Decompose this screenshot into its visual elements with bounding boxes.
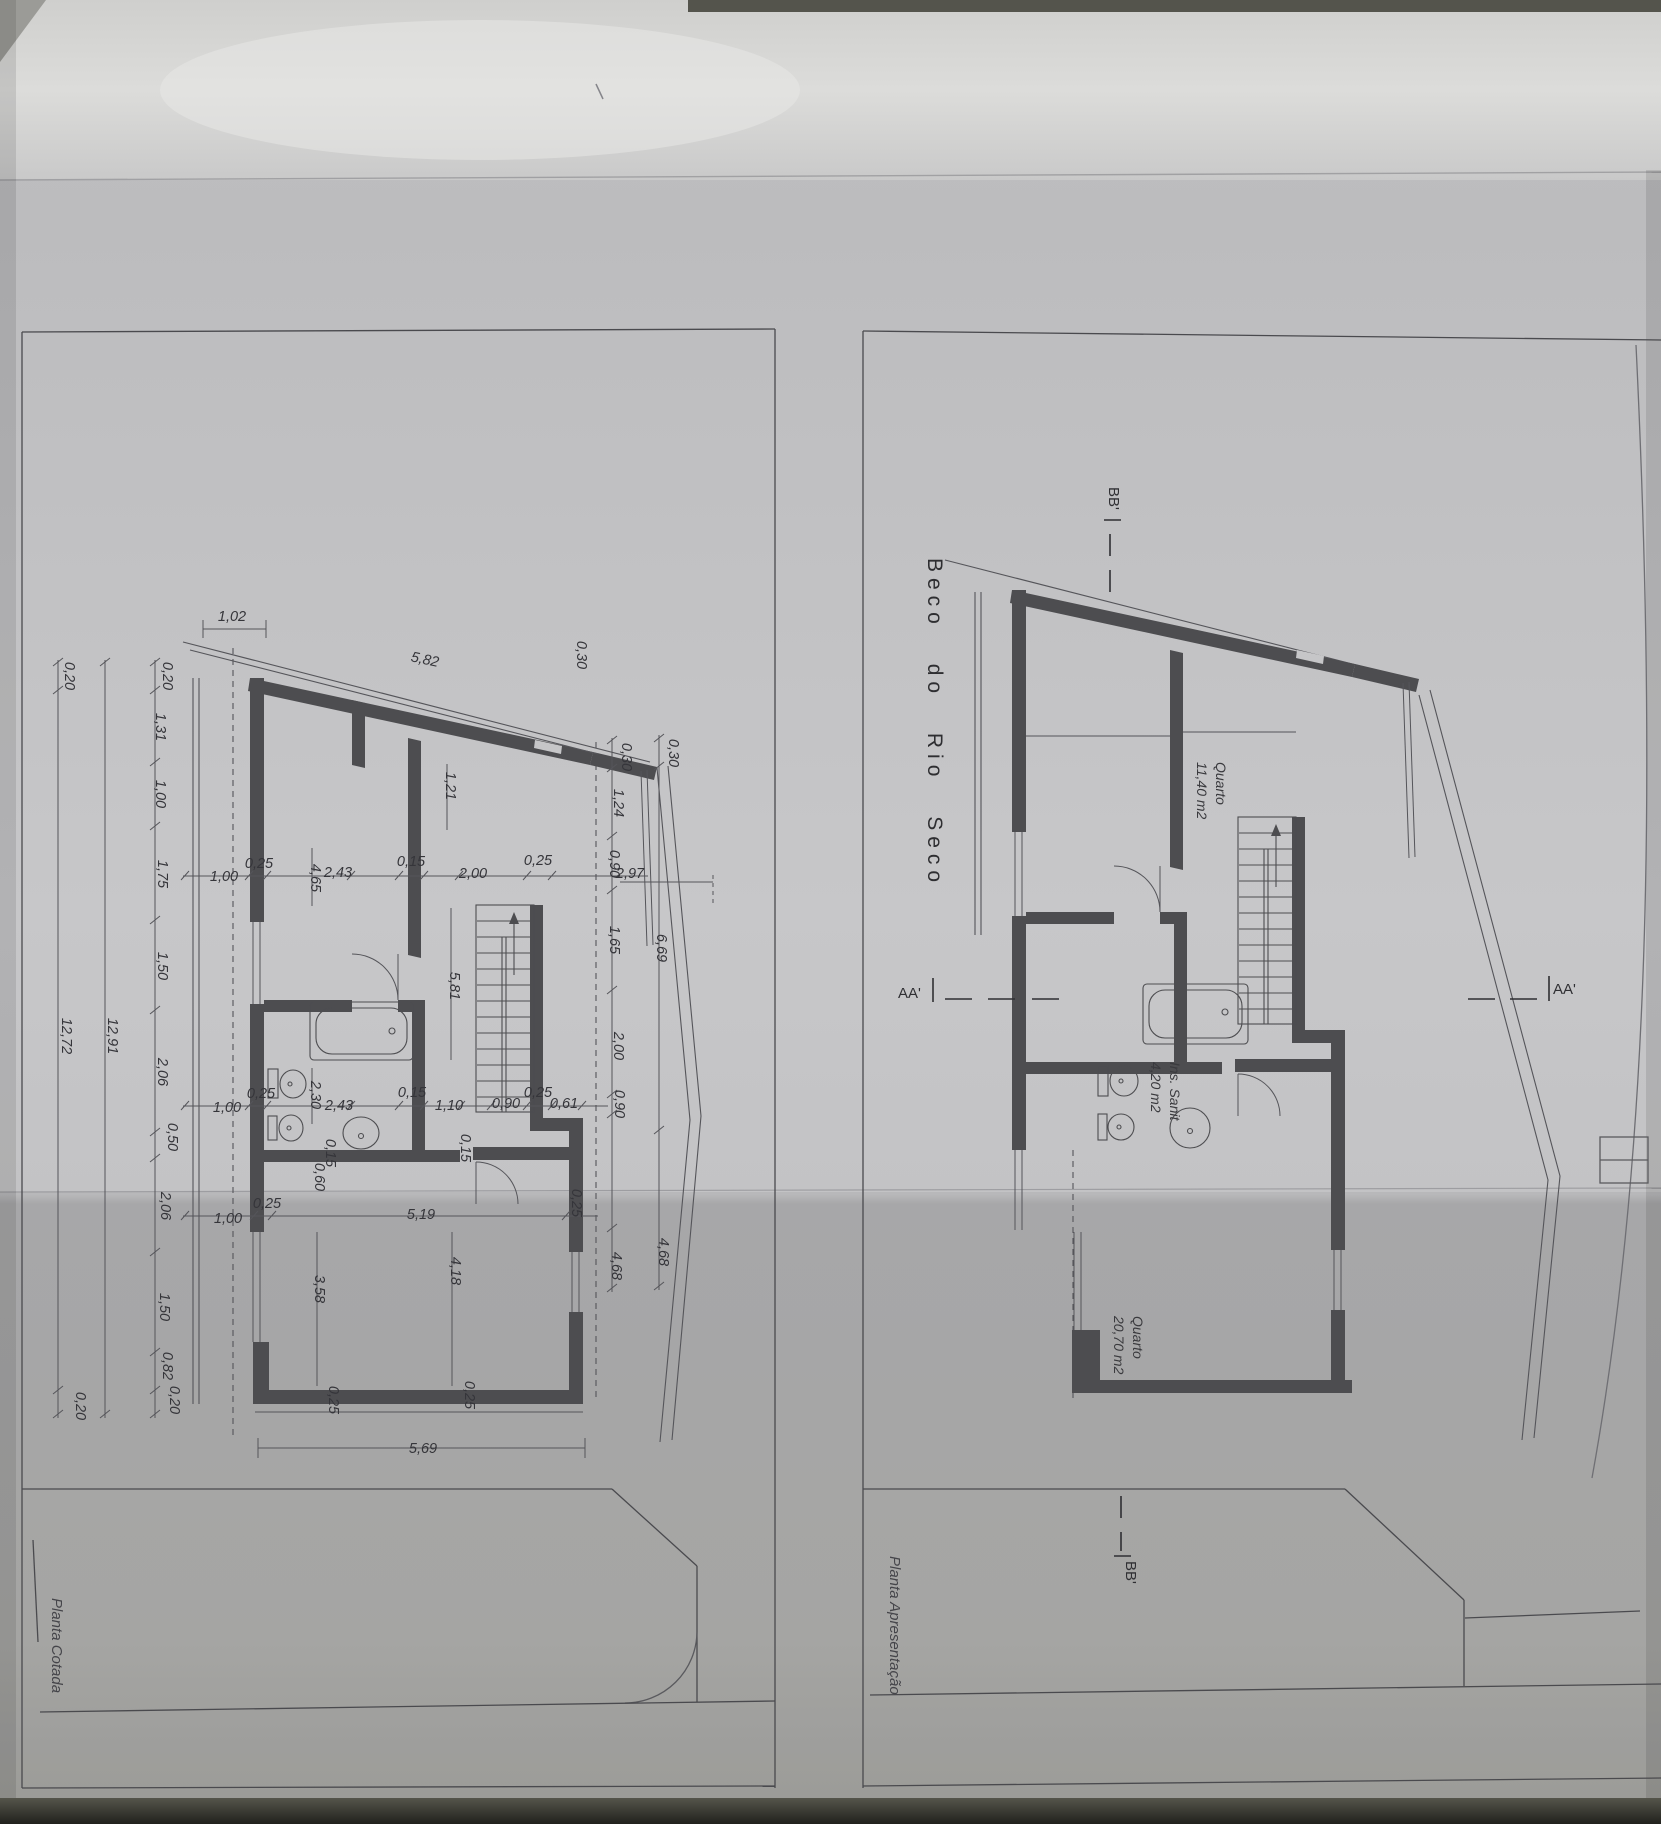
dimension-label: 0,25	[568, 1189, 584, 1218]
room-name: Ins. Sanit	[1167, 1062, 1183, 1121]
section-bb-bottom-label: BB'	[1122, 1561, 1139, 1584]
dimension-label: 2,00	[610, 1031, 626, 1060]
dimension-label: 3,58	[311, 1275, 327, 1303]
room-area: 11,40 m2	[1194, 762, 1210, 820]
dimension-label: 0,20	[61, 662, 77, 690]
dimension-label: 1,65	[606, 926, 622, 955]
dimension-label: 2,00	[458, 866, 487, 882]
dimension-label: 2,43	[324, 1098, 353, 1114]
dimension-label: 0,82	[159, 1352, 175, 1380]
dimension-label: 1,10	[435, 1098, 463, 1114]
dimension-label: 1,21	[442, 772, 458, 800]
dimension-label: 0,90	[611, 1090, 627, 1118]
dimension-label: 0,50	[164, 1123, 180, 1151]
room-area: 4,20 m2	[1148, 1062, 1164, 1113]
dimension-label: 4,68	[608, 1252, 624, 1280]
dimension-label: 0,25	[461, 1381, 477, 1410]
street-title: Beco do Rio Seco	[923, 558, 946, 888]
dimension-label: 0,90	[492, 1096, 520, 1112]
dimension-label: 0,60	[311, 1163, 327, 1191]
dimension-label: 1,50	[156, 1293, 172, 1321]
dimension-label: 0,90	[606, 850, 622, 878]
section-bb-top-label: BB'	[1105, 487, 1122, 510]
dimension-label: 0,15	[457, 1134, 473, 1163]
dimension-label: 6,69	[653, 934, 669, 962]
dimension-label: 1,50	[154, 952, 170, 980]
dimension-label: 1,31	[152, 713, 168, 741]
dimension-label: 0,20	[159, 662, 175, 690]
dimension-label: 0,61	[550, 1096, 578, 1112]
left-plan-title: Planta Cotada	[48, 1598, 65, 1693]
dimension-label: 0,15	[398, 1085, 427, 1101]
dimension-label: 0,20	[72, 1392, 88, 1420]
room-name: Quarto	[1130, 1316, 1146, 1359]
room-name: Quarto	[1213, 762, 1229, 805]
dimension-label: 0,20	[166, 1386, 182, 1414]
dimension-label: 2,43	[323, 865, 352, 881]
dimension-label: 1,24	[610, 789, 626, 817]
dimension-label: 4,18	[447, 1257, 463, 1285]
dimension-label: 1,75	[154, 860, 170, 889]
dimension-label: 0,30	[573, 641, 589, 669]
dimension-label: 5,81	[446, 972, 462, 1000]
dimension-label: 1,00	[214, 1211, 242, 1227]
dimension-label: 1,00	[213, 1100, 241, 1116]
dimension-label: 2,30	[307, 1080, 323, 1109]
paper-background	[0, 0, 1661, 1824]
dimension-label: 1,02	[218, 609, 246, 625]
dimension-label: 0,25	[247, 1086, 276, 1102]
dimension-label: 0,25	[524, 1085, 553, 1101]
dimension-label: 1,00	[152, 780, 168, 808]
dimension-label: 0,30	[665, 739, 681, 767]
dimension-label: 5,19	[407, 1207, 435, 1223]
dimension-label: 0,25	[253, 1196, 282, 1212]
dimension-label: 12,91	[104, 1018, 120, 1054]
room-area: 20,70 m2	[1111, 1315, 1127, 1375]
dimension-label: 5,69	[409, 1441, 437, 1457]
dimension-label: 0,25	[325, 1386, 341, 1415]
section-aa-left-label: AA'	[898, 985, 921, 1002]
dimension-label: 2,06	[154, 1057, 170, 1087]
dimension-label: 0,15	[397, 854, 426, 870]
floor-plan-sheet-photo: 1,025,820,201,311,001,751,502,060,502,06…	[0, 0, 1661, 1824]
dimension-label: 0,25	[524, 853, 553, 869]
dimension-label: 0,30	[618, 743, 634, 771]
dimension-label: 4,68	[655, 1238, 671, 1266]
drawing-canvas: 1,025,820,201,311,001,751,502,060,502,06…	[0, 0, 1661, 1824]
dimension-label: 2,06	[157, 1191, 173, 1221]
dimension-label: 0,25	[245, 856, 274, 872]
dimension-label: 1,00	[210, 869, 238, 885]
dimension-label: 4,65	[307, 864, 323, 893]
section-aa-right-label: AA'	[1553, 981, 1576, 998]
dimension-label: 12,72	[58, 1018, 74, 1054]
right-plan-title: Planta Apresentação	[886, 1556, 903, 1695]
